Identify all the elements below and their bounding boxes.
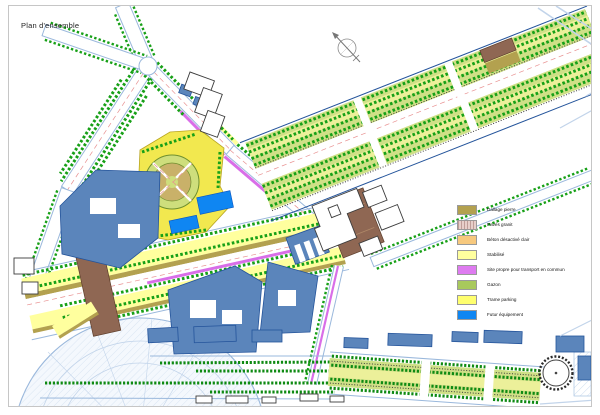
legend: Dallage pierrePavés granitBéton désactiv…: [457, 202, 589, 322]
legend-swatch: [457, 205, 477, 215]
legend-item: Béton désactivé clair: [457, 232, 589, 247]
esplanade-south: [327, 352, 543, 409]
legend-item: Pavés granit: [457, 217, 589, 232]
crossing-node: [139, 57, 157, 75]
legend-item: Site propre pour transport en commun: [457, 262, 589, 277]
legend-item: Trame parking: [457, 292, 589, 307]
legend-item: Stabilisé: [457, 247, 589, 262]
legend-item: Dallage pierre: [457, 202, 589, 217]
legend-label: Pavés granit: [487, 222, 513, 227]
legend-label: Trame parking: [487, 297, 516, 302]
legend-label: Béton désactivé clair: [487, 237, 529, 242]
legend-swatch: [457, 310, 477, 320]
legend-label: Dallage pierre: [487, 207, 516, 212]
legend-swatch: [457, 250, 477, 260]
legend-swatch: [457, 220, 477, 230]
legend-label: Stabilisé: [487, 252, 504, 257]
legend-swatch: [457, 265, 477, 275]
north-arrow-icon: [332, 32, 360, 62]
legend-item: Gazon: [457, 277, 589, 292]
legend-swatch: [457, 295, 477, 305]
legend-swatch: [457, 235, 477, 245]
legend-swatch: [457, 280, 477, 290]
legend-label: Site propre pour transport en commun: [487, 267, 565, 272]
legend-label: Gazon: [487, 282, 501, 287]
page-title: Plan d'ensemble: [21, 21, 79, 30]
legend-label: Futur équipement: [487, 312, 523, 317]
legend-item: Futur équipement: [457, 307, 589, 322]
